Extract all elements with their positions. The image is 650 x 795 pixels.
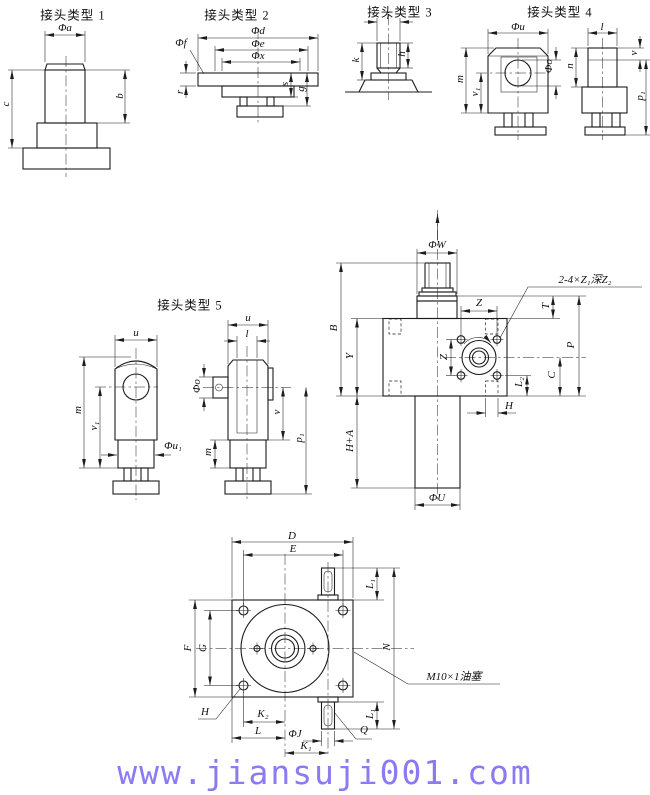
dim-label-phi-a: Φa bbox=[58, 22, 72, 34]
bottom-flange-view bbox=[189, 537, 500, 757]
dim-label-phi-e: Φe bbox=[251, 38, 264, 50]
technical-drawing-page: 接头类型 1 接头类型 2 接头类型 3 接头类型 4 接头类型 5 Φa b … bbox=[0, 0, 650, 795]
dim-label-q: Q bbox=[360, 724, 368, 736]
type1-view bbox=[8, 31, 130, 177]
dim-label-l1-top: L₁ bbox=[364, 579, 376, 589]
bonnet bbox=[417, 301, 457, 319]
title-joint-type-2: 接头类型 2 bbox=[204, 5, 269, 24]
dim-label-phi-w: ΦW bbox=[428, 239, 446, 251]
dim-label-p1: p₁ bbox=[293, 433, 305, 442]
dim-label-r: r bbox=[174, 90, 186, 94]
dim-label-k: k bbox=[350, 58, 362, 63]
dim-label-l: l bbox=[600, 21, 603, 33]
dim-label-m: m bbox=[454, 75, 466, 83]
dim-label-v1: v₁ bbox=[88, 422, 100, 431]
tap-callout-leader bbox=[500, 287, 642, 338]
dim-label-n: n bbox=[564, 63, 576, 69]
dim-label-phi-u1: Φu₁ bbox=[164, 440, 182, 452]
dim-label-k1: K₁ bbox=[300, 740, 311, 752]
dim-label-phi-o: Φo bbox=[191, 379, 203, 393]
title-joint-type-4: 接头类型 4 bbox=[527, 2, 592, 21]
type2-view bbox=[180, 28, 318, 123]
type4-side-view bbox=[571, 28, 650, 140]
dim-label-g: G bbox=[197, 644, 209, 652]
dim-label-f: F bbox=[182, 645, 194, 652]
dim-label-z-vertical: Z bbox=[438, 354, 450, 360]
assembly-view bbox=[336, 210, 642, 510]
dim-label-phi-x: Φx bbox=[251, 50, 264, 62]
tap-hole-callout: 2-4×Z₁深Z₂ bbox=[559, 271, 612, 287]
type4-front-view bbox=[461, 29, 561, 140]
type1-base bbox=[23, 148, 110, 169]
dim-label-l2: L₂ bbox=[513, 377, 525, 387]
dim-label-p: P bbox=[565, 342, 577, 349]
dim-label-g: g bbox=[295, 86, 307, 92]
dim-label-n: N bbox=[381, 643, 393, 650]
dim-label-z-horizontal: Z bbox=[476, 297, 482, 309]
title-joint-type-1: 接头类型 1 bbox=[40, 5, 105, 24]
dim-label-phi-o: Φo bbox=[543, 59, 555, 73]
dim-label-d: D bbox=[288, 530, 296, 542]
dim-label-v1: v₁ bbox=[469, 88, 481, 97]
drawing-canvas bbox=[0, 0, 650, 795]
dim-label-v: v bbox=[628, 51, 640, 56]
dim-label-u-left: u bbox=[133, 327, 139, 339]
dim-label-l: l bbox=[245, 328, 248, 340]
dim-label-p1: p₁ bbox=[634, 91, 646, 100]
dim-label-phi-j: ΦJ bbox=[288, 728, 301, 740]
watermark-url: www.jiansuji001.com bbox=[0, 753, 650, 792]
dim-label-b: B bbox=[328, 325, 340, 332]
dim-label-l1-bottom: L₁ bbox=[364, 709, 376, 719]
dim-label-phi-f: Φf bbox=[175, 37, 186, 49]
dim-label-h-hole: H bbox=[201, 706, 209, 718]
dim-label-b: b bbox=[114, 93, 126, 99]
dim-label-l: L bbox=[255, 725, 261, 737]
dim-label-m-right: m bbox=[202, 448, 214, 456]
dim-label-m-left: m bbox=[72, 406, 84, 414]
dim-label-u-right: u bbox=[245, 312, 251, 324]
dim-label-h: h bbox=[396, 51, 408, 57]
type5-side-view bbox=[199, 320, 312, 500]
dim-label-phi-d: Φd bbox=[251, 25, 265, 37]
title-joint-type-5: 接头类型 5 bbox=[157, 295, 222, 314]
dim-label-phi-u-shaft: ΦU bbox=[429, 492, 445, 504]
dim-label-t: T bbox=[540, 303, 552, 309]
type1-shaft bbox=[45, 70, 85, 123]
dim-label-v: v bbox=[271, 410, 283, 415]
dim-label-h: H bbox=[505, 400, 513, 412]
dim-label-c: c bbox=[0, 102, 12, 107]
title-joint-type-3: 接头类型 3 bbox=[367, 2, 432, 21]
dim-label-k2: K₂ bbox=[257, 708, 268, 720]
dim-label-phi-u: Φu bbox=[511, 21, 525, 33]
dim-label-s: s bbox=[279, 82, 291, 86]
dim-label-e: E bbox=[290, 543, 297, 555]
type5-front-view bbox=[79, 335, 171, 500]
dim-label-i: i bbox=[386, 10, 389, 22]
oil-plug-callout: M10×1油塞 bbox=[426, 668, 481, 684]
dim-label-h-plus-a: H+A bbox=[344, 430, 356, 452]
dim-label-y: Y bbox=[344, 353, 356, 359]
dim-label-c: C bbox=[546, 371, 558, 378]
